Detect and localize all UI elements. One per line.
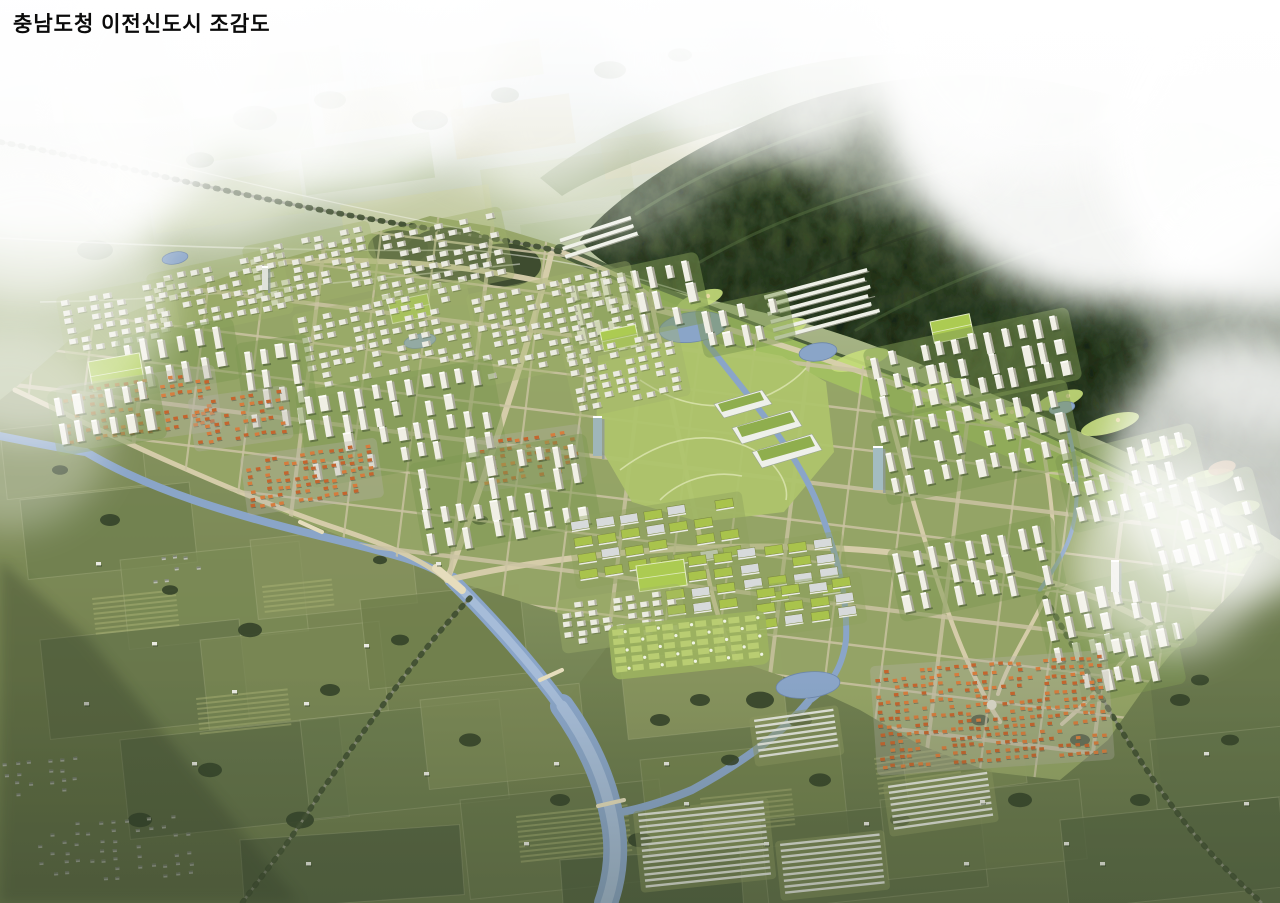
bottom-vignette: [0, 0, 1280, 903]
birdseye-rendering: 충남도청 이전신도시 조감도: [0, 0, 1280, 903]
aerial-rendering-canvas: [0, 0, 1280, 903]
caption-title: 충남도청 이전신도시 조감도: [13, 8, 271, 38]
